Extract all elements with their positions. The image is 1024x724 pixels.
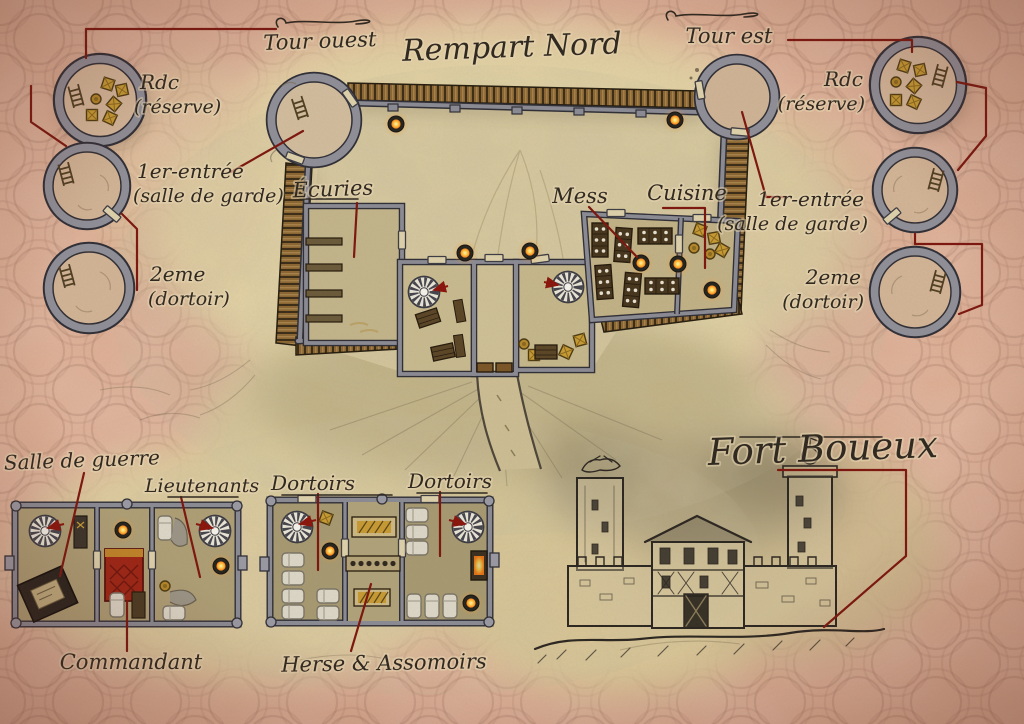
fort-map-page: Rempart Nord Tour ouest Tour est Écuries… [0, 0, 1024, 724]
vignette [0, 0, 1024, 724]
